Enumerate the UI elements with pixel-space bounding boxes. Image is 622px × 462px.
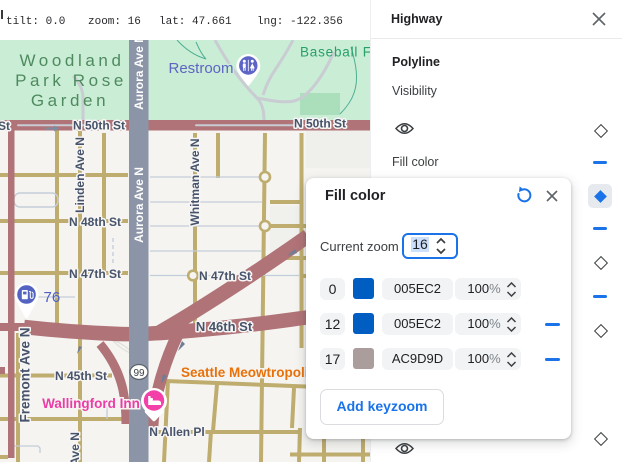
svg-text:N 45th St: N 45th St	[55, 369, 107, 383]
svg-text:Seattle Meowtropoli: Seattle Meowtropoli	[181, 365, 309, 380]
svg-text:Park Rose: Park Rose	[15, 71, 127, 90]
svg-text:76: 76	[44, 289, 61, 306]
svg-text:99: 99	[133, 368, 145, 379]
svg-text:N 47th St: N 47th St	[199, 269, 251, 283]
svg-text:N 46th St: N 46th St	[196, 319, 253, 334]
svg-text:N 50th St: N 50th St	[294, 117, 346, 131]
svg-text:Woodland: Woodland	[19, 51, 124, 70]
svg-text:Baseball Fie: Baseball Fie	[300, 45, 370, 60]
svg-text:N 47th St: N 47th St	[69, 267, 121, 281]
svg-text:Wallingford Inn: Wallingford Inn	[42, 396, 140, 411]
svg-text:N 48th St: N 48th St	[69, 215, 121, 229]
svg-text:Garden: Garden	[31, 91, 109, 110]
svg-text:Restroom: Restroom	[168, 60, 233, 77]
svg-text:Aurora Ave N: Aurora Ave N	[132, 167, 146, 243]
svg-text:Fremont Ave N: Fremont Ave N	[18, 327, 33, 422]
svg-text:Aurora Ave N: Aurora Ave N	[132, 40, 146, 110]
svg-text:Linden Ave N: Linden Ave N	[68, 432, 82, 462]
svg-text:St: St	[0, 119, 10, 133]
svg-text:Linden Ave N: Linden Ave N	[73, 137, 87, 213]
svg-text:N 50th St: N 50th St	[73, 119, 125, 133]
svg-text:N Allen Pl: N Allen Pl	[149, 425, 205, 439]
svg-text:Whitman Ave N: Whitman Ave N	[188, 138, 202, 225]
